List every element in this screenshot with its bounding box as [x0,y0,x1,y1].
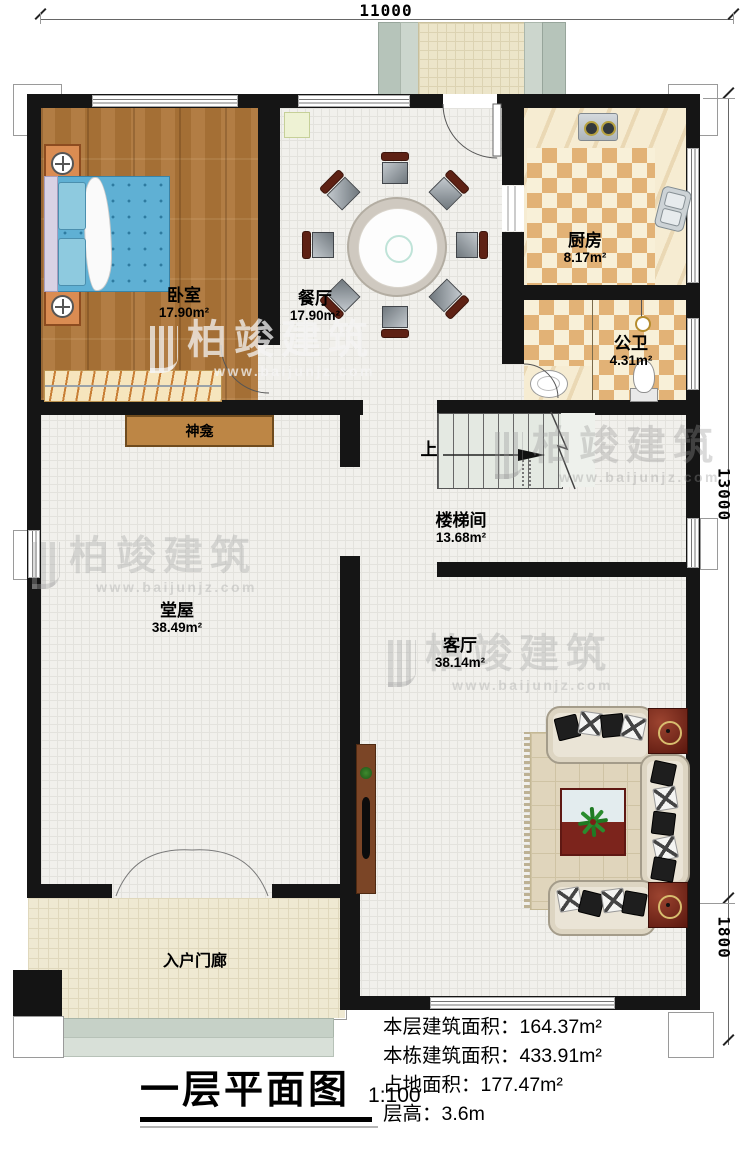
wall-left [27,94,41,898]
north-porch-step-left-inner [400,22,420,96]
window-sill-bottom-right [668,1012,714,1058]
wall-stair-living [437,562,700,577]
dim-top-value: 11000 [336,1,436,20]
dim-right-lower-value: 1800 [715,900,734,976]
title-text: 一层平面图 [140,1070,350,1113]
stairs [437,413,563,489]
room-label-dining: 餐厅 17.90m² [270,289,360,323]
room-label-living: 客厅 38.14m² [415,636,505,670]
title-scale: 1:100 [368,1084,421,1113]
plant-pot [590,819,596,825]
pendant-light-icon [635,316,651,332]
room-label-porch: 入户门廊 [140,953,250,971]
dining-chair [303,232,333,258]
lamp-icon [51,152,74,175]
sofa-cushion [620,714,647,741]
bathroom-sink [530,370,568,398]
room-label-kitchen: 厨房 8.17m² [540,231,630,265]
wall-kitchen-bath [502,285,700,300]
title-underline-thin [140,1126,378,1128]
north-porch-step-right-outer [542,22,566,96]
wall-hall-bottom-left [27,884,112,898]
side-table [648,708,688,754]
lamp-icon [51,295,74,318]
room-label-stair: 楼梯间 13.68m² [416,511,506,545]
north-porch-floor [418,22,526,96]
shrine: 神龛 [125,415,274,447]
sofa-cushion [651,811,677,837]
sofa-cushion [650,760,677,787]
porch-column [13,970,62,1016]
sofa-cushion [650,856,677,883]
window-bedroom-north [92,95,238,107]
window-living-south [430,997,615,1009]
room-label-bedroom: 卧室 17.90m² [139,286,229,320]
window-bath-east [687,318,699,390]
wall-kitchen-left-lower [502,232,524,290]
pillow [58,238,86,286]
burner-icon [584,121,599,136]
stat-row: 本栋建筑面积：433.91m² [383,1042,602,1071]
sofa-cushion [621,890,648,917]
room-label-hall: 堂屋 38.49m² [132,601,222,635]
stairs-up-label: 上 [417,440,441,459]
dining-chair [382,153,408,183]
coffee-table [560,788,626,856]
stair-rail-dotted [522,452,524,486]
window-stair-east [687,518,699,568]
dining-chair [457,232,487,258]
north-porch-step-right-inner [524,22,544,96]
side-table [648,882,688,928]
porch-column-base [13,1016,64,1058]
headboard [44,176,58,292]
dining-table [347,197,447,297]
tv [362,797,370,859]
dining-chair [382,307,408,337]
wall-kitchen-left-upper [502,94,524,185]
window-dining-north [298,95,410,107]
entry-step-1 [62,1018,334,1039]
sofa-cushion [652,785,678,811]
stove [578,113,618,141]
lazy-susan [385,235,413,263]
dining-corner-pad [284,112,310,138]
north-porch-step-left-outer [378,22,402,96]
floor-plan: 神龛 [0,0,750,1150]
stat-row: 本层建筑面积：164.37m² [383,1013,602,1042]
title-underline-thick [140,1117,372,1122]
plant-icon [360,767,372,779]
dim-right-upper-value: 13000 [715,455,734,535]
burner-icon [601,121,616,136]
stair-rail-dotted [529,452,531,486]
entry-door-opening [443,94,497,108]
wall-bath-left [502,300,524,364]
sofa-cushion [578,711,604,737]
entry-step-2 [62,1037,334,1057]
tv-cabinet [356,744,376,894]
pillow [58,182,86,230]
wardrobe [44,370,222,402]
nightstand [44,287,81,326]
window-kitchen-east [687,148,699,283]
wall-bedroom-bottom [27,400,363,415]
shrine-label: 神龛 [186,421,214,441]
room-label-bath: 公卫 4.31m² [586,334,676,368]
bed [44,176,168,290]
wall-hall-stair-stub [340,415,360,467]
drawing-title: 一层平面图 1:100 [140,1070,421,1113]
stair-landing [561,413,595,487]
window-hall-west [28,530,40,578]
